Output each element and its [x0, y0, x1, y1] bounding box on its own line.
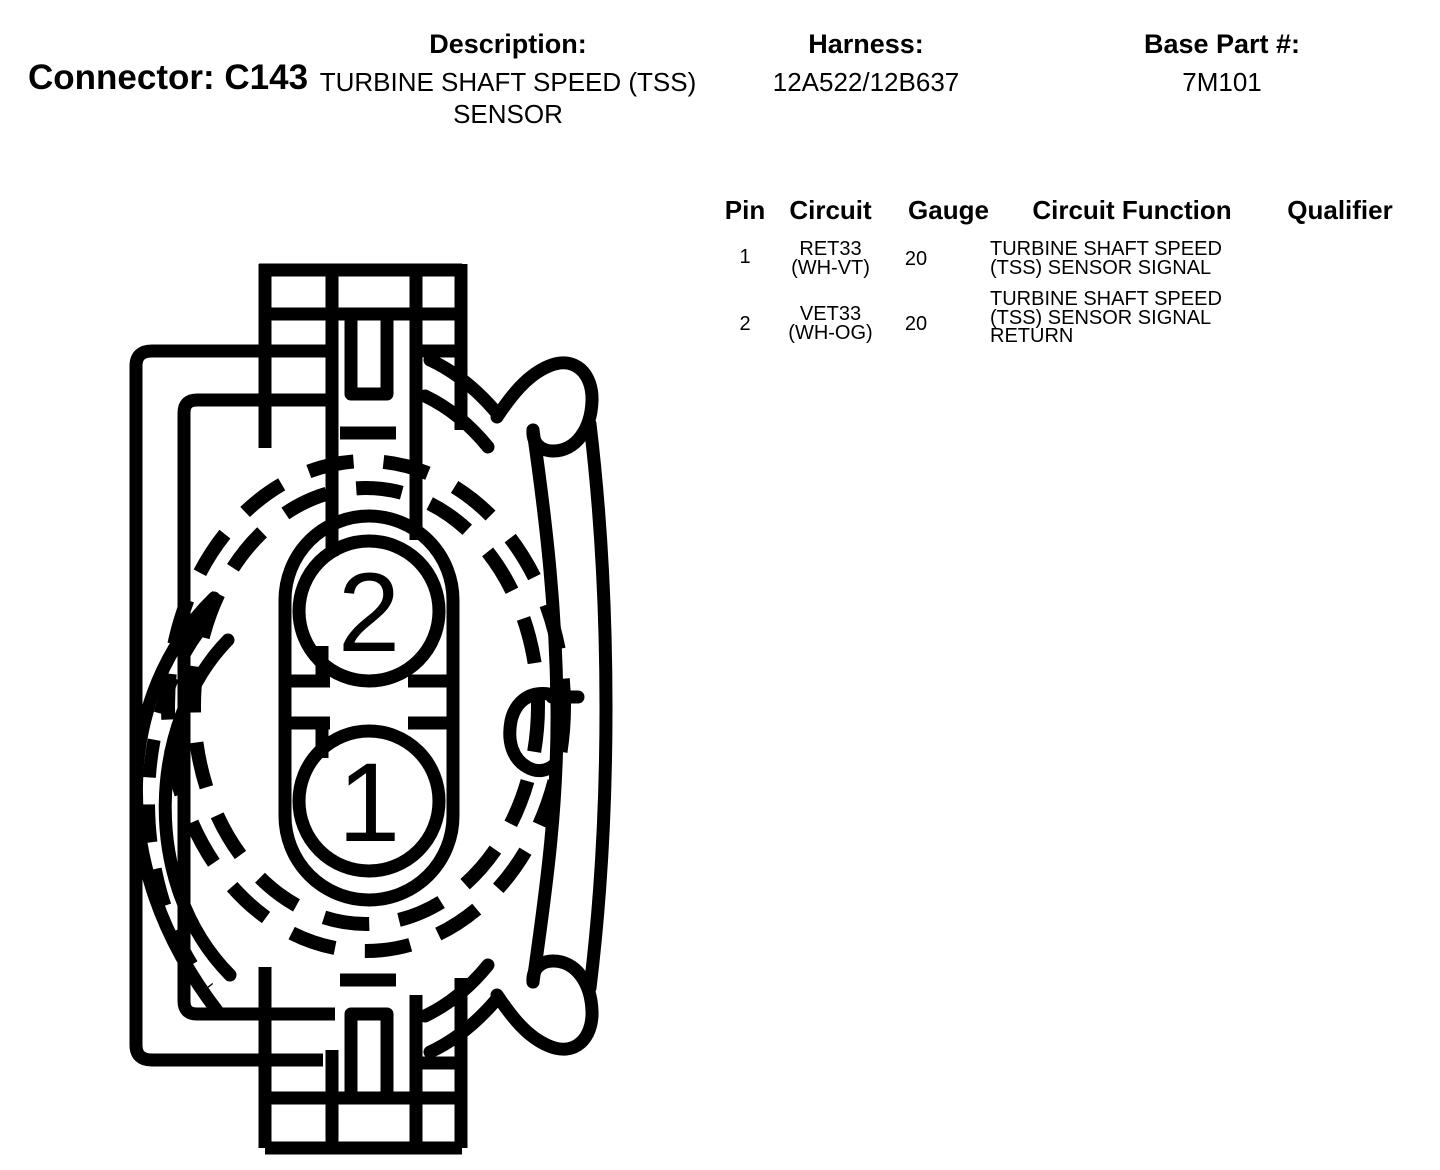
bottom-tab-slot — [351, 1014, 387, 1097]
top-latch-hook — [497, 363, 592, 451]
connector-sheet: Connector: C143 Description: TURBINE SHA… — [0, 0, 1440, 1170]
pin-1-label: 1 — [338, 740, 400, 865]
bottom-latch-hook — [497, 961, 592, 1049]
connector-face-diagram: 2 1 — [0, 0, 1440, 1170]
top-tab-slot — [351, 316, 387, 394]
pin-2-label: 2 — [338, 550, 400, 675]
body-profile-outer — [590, 424, 606, 988]
seal-ring-outer — [168, 461, 564, 951]
